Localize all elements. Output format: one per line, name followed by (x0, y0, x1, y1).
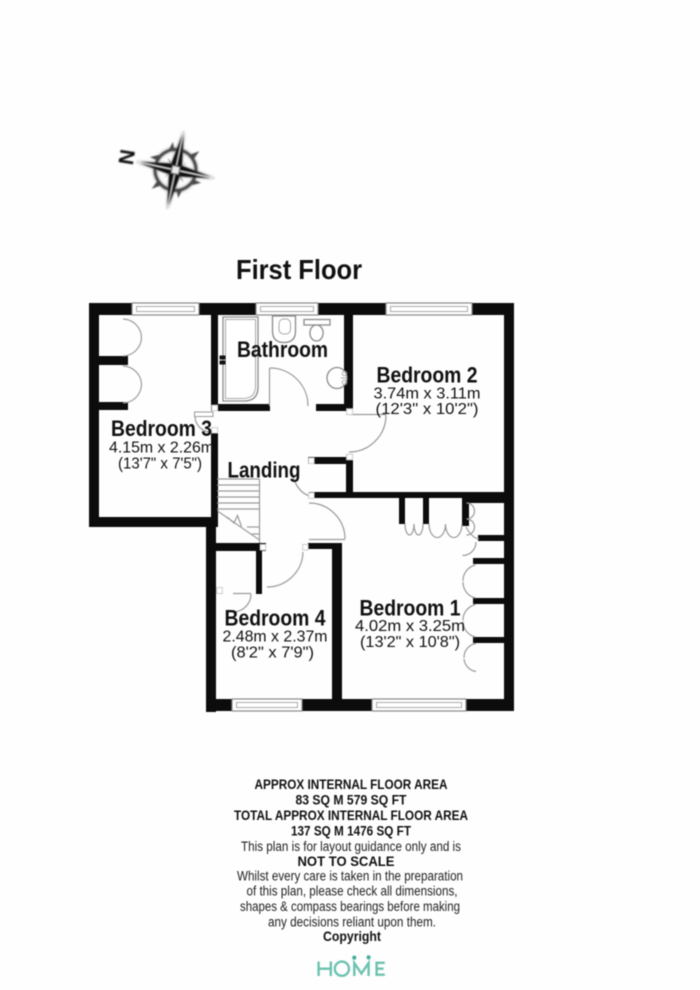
svg-text:shapes & compass bearings befo: shapes & compass bearings before making (240, 899, 460, 914)
svg-text:TOTAL APPROX INTERNAL FLOOR AR: TOTAL APPROX INTERNAL FLOOR AREA (234, 808, 468, 823)
svg-text:This plan is for layout guidan: This plan is for layout guidance only an… (241, 839, 461, 854)
svg-text:Bedroom 1: Bedroom 1 (360, 596, 461, 621)
svg-text:Bathroom: Bathroom (237, 337, 328, 362)
svg-text:Copyright: Copyright (323, 929, 381, 944)
svg-text:3.74m x 3.11m: 3.74m x 3.11m (374, 386, 481, 403)
svg-text:Bedroom 4: Bedroom 4 (225, 606, 327, 631)
svg-text:83 SQ M 579 SQ FT: 83 SQ M 579 SQ FT (296, 793, 408, 808)
svg-text:(12'3" x 10'2"): (12'3" x 10'2") (376, 401, 479, 418)
svg-text:(13'2" x 10'8"): (13'2" x 10'8") (360, 634, 460, 651)
svg-text:Landing: Landing (228, 458, 301, 483)
svg-text:4.02m x 3.25m: 4.02m x 3.25m (355, 618, 465, 635)
svg-text:Bedroom 2: Bedroom 2 (377, 363, 478, 388)
svg-text:2.48m x 2.37m: 2.48m x 2.37m (223, 629, 328, 646)
svg-text:Whilst every care is taken in: Whilst every care is taken in the prepar… (237, 869, 463, 884)
svg-text:any decisions reliant upon the: any decisions reliant upon them. (268, 914, 436, 929)
svg-text:(13'7" x 7'5"): (13'7" x 7'5") (118, 456, 202, 473)
svg-text:Bedroom 3: Bedroom 3 (111, 416, 212, 441)
svg-text:4.15m x 2.26m: 4.15m x 2.26m (109, 440, 214, 457)
svg-text:First Floor: First Floor (236, 254, 362, 285)
svg-text:APPROX INTERNAL FLOOR AREA: APPROX INTERNAL FLOOR AREA (255, 777, 448, 792)
svg-text:137 SQ M 1476 SQ FT: 137 SQ M 1476 SQ FT (291, 824, 412, 839)
svg-text:NOT TO SCALE: NOT TO SCALE (298, 854, 395, 869)
svg-text:(8'2" x 7'9"): (8'2" x 7'9") (231, 645, 314, 662)
svg-text:of this plan, please check all: of this plan, please check all dimension… (247, 884, 458, 899)
